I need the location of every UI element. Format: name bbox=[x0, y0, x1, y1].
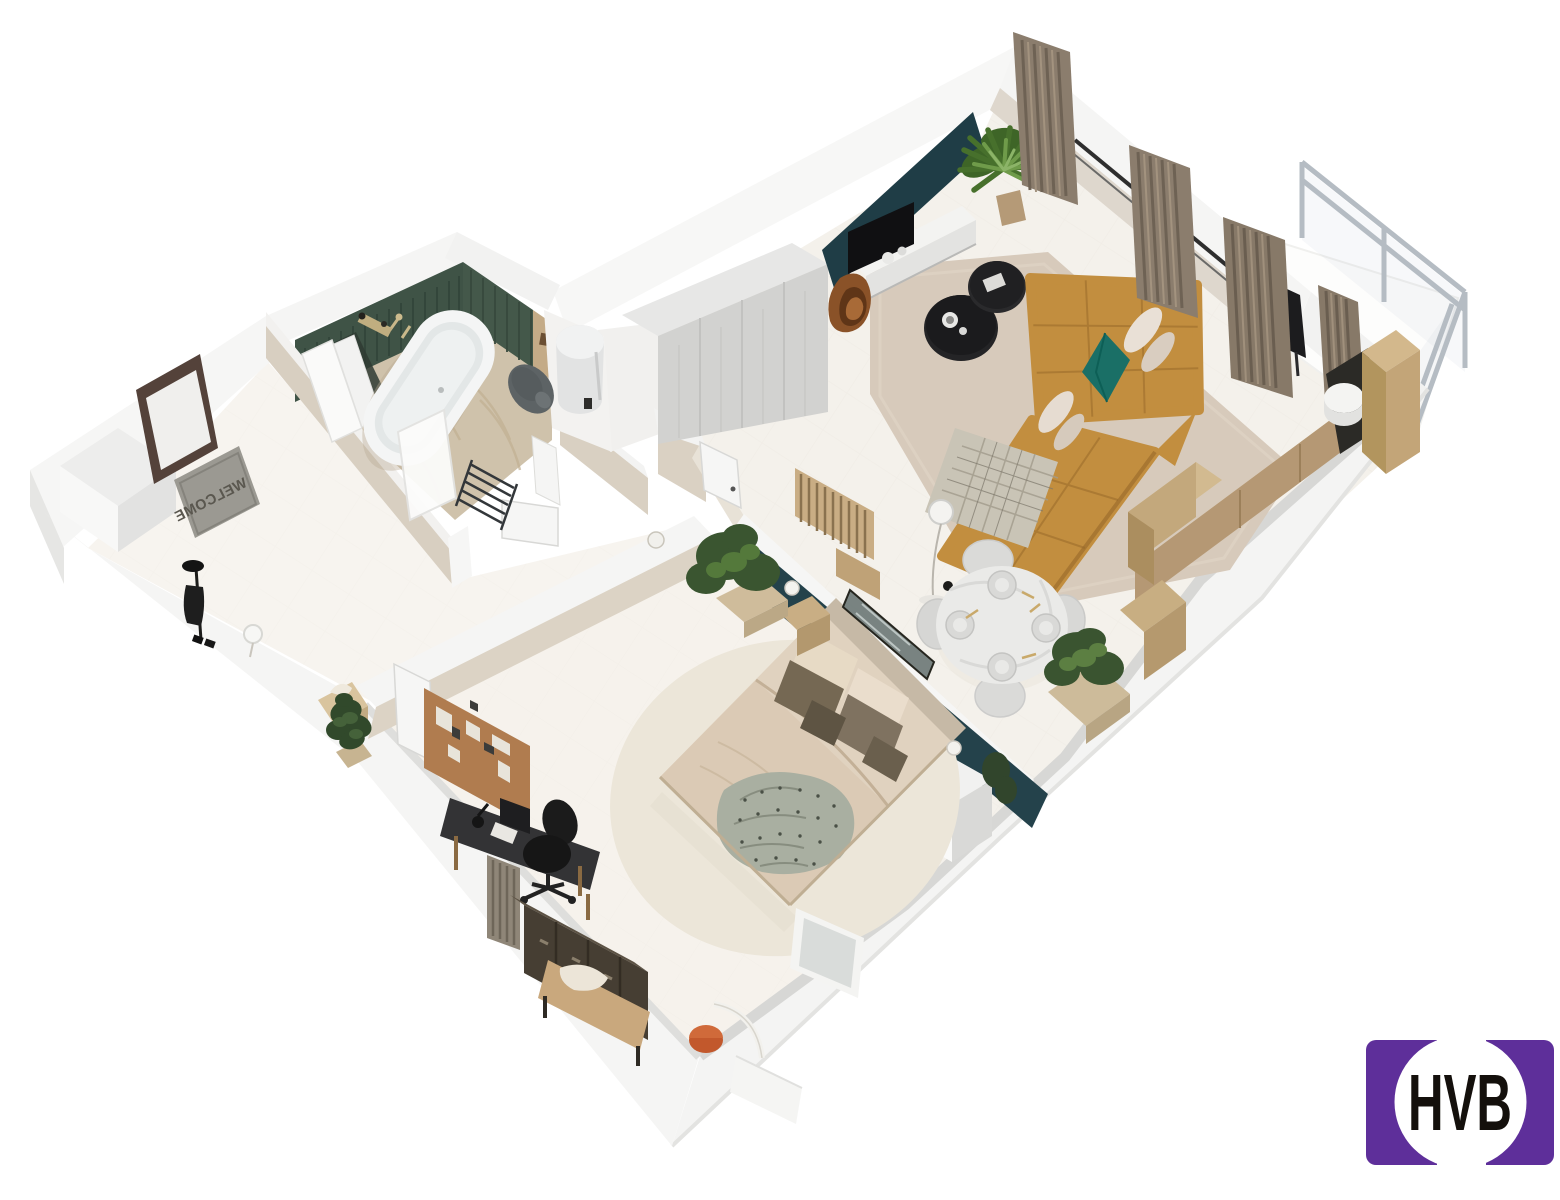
svg-text:HVB: HVB bbox=[1408, 1058, 1512, 1147]
